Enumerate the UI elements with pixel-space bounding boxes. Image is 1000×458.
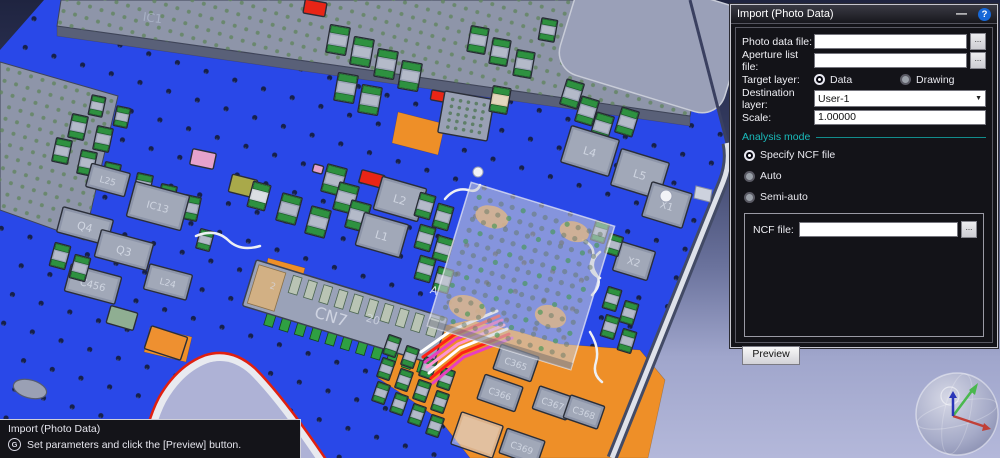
analysis-option-auto[interactable]: Auto — [744, 170, 986, 182]
target-layer-label: Target layer: — [742, 74, 814, 86]
scale-label: Scale: — [742, 112, 814, 124]
pcb-component-chip-cap — [350, 36, 375, 67]
ncf-file-browse-button[interactable]: ... — [961, 221, 977, 238]
chevron-down-icon: ▼ — [975, 95, 982, 102]
analysis-mode-section: Analysis mode — [742, 131, 986, 143]
pcb-component-mini-bga — [438, 91, 495, 141]
status-overlay: Import (Photo Data) G Set parameters and… — [0, 419, 301, 458]
radio-specify-ncf-selected[interactable] — [744, 150, 755, 161]
application-window: L2L1L4L5X1X2L25Q4Q3IC13C456L24CN7C365C36… — [0, 0, 1000, 458]
analysis-option-specify-ncf[interactable]: Specify NCF file — [744, 149, 986, 161]
pcb-component-chip-cap — [326, 24, 351, 55]
pcb-silkscreen-label: IC1 — [142, 10, 163, 27]
preview-button[interactable]: Preview — [742, 346, 800, 365]
pcb-component-chip-cap — [538, 18, 558, 42]
orientation-sphere[interactable] — [914, 371, 999, 457]
pcb-hole — [660, 190, 672, 202]
pcb-component-chip — [312, 164, 324, 174]
radio-data-selected[interactable] — [814, 74, 825, 85]
analysis-option-semi-auto[interactable]: Semi-auto — [744, 191, 986, 203]
pcb-component-chip — [303, 0, 327, 17]
status-message: Set parameters and click the [Preview] b… — [27, 439, 241, 451]
pcb-component-chip-cap — [467, 26, 489, 55]
pcb-component-chip-cap — [358, 84, 383, 115]
dialog-title: Import (Photo Data) — [737, 8, 834, 20]
destination-layer-label: Destination layer: — [742, 87, 814, 111]
destination-layer-select[interactable]: User-1 ▼ — [814, 90, 986, 107]
ncf-file-label: NCF file: — [753, 224, 799, 236]
dialog-title-bar[interactable]: Import (Photo Data) — ? — [731, 5, 997, 24]
photo-data-file-browse-button[interactable]: ... — [970, 33, 986, 50]
minimize-button[interactable]: — — [952, 8, 971, 20]
radio-auto[interactable] — [744, 171, 755, 182]
pcb-hole — [473, 167, 483, 177]
target-layer-option-drawing[interactable]: Drawing — [900, 74, 986, 86]
radio-drawing[interactable] — [900, 74, 911, 85]
radio-semi-auto[interactable] — [744, 192, 755, 203]
target-layer-option-data[interactable]: Data — [814, 74, 900, 86]
dialog-body: Photo data file: ... Aperture list file:… — [735, 27, 993, 343]
aperture-list-file-input[interactable] — [814, 53, 967, 68]
pcb-component-chip-cap — [374, 48, 399, 79]
pcb-component-chip-cap — [334, 72, 359, 103]
ncf-file-input[interactable] — [799, 222, 958, 237]
aperture-list-file-label: Aperture list file: — [742, 49, 814, 73]
photo-data-file-label: Photo data file: — [742, 36, 814, 48]
guide-icon: G — [8, 438, 21, 451]
scale-input[interactable]: 1.00000 — [814, 110, 986, 125]
ncf-file-groupbox: NCF file: ... — [744, 213, 984, 337]
status-title: Import (Photo Data) — [8, 423, 292, 435]
photo-data-file-input[interactable] — [814, 34, 967, 49]
aperture-list-file-browse-button[interactable]: ... — [970, 52, 986, 69]
pcb-component-chip-cap — [489, 86, 511, 115]
pcb-component-chip-cap — [513, 50, 535, 79]
pcb-component-chip-cap — [398, 60, 423, 91]
help-icon[interactable]: ? — [978, 8, 991, 21]
analysis-mode-label: Analysis mode — [742, 131, 810, 143]
pcb-component-chip-cap — [489, 38, 511, 67]
import-photo-data-dialog: Import (Photo Data) — ? Photo data file:… — [730, 4, 998, 348]
